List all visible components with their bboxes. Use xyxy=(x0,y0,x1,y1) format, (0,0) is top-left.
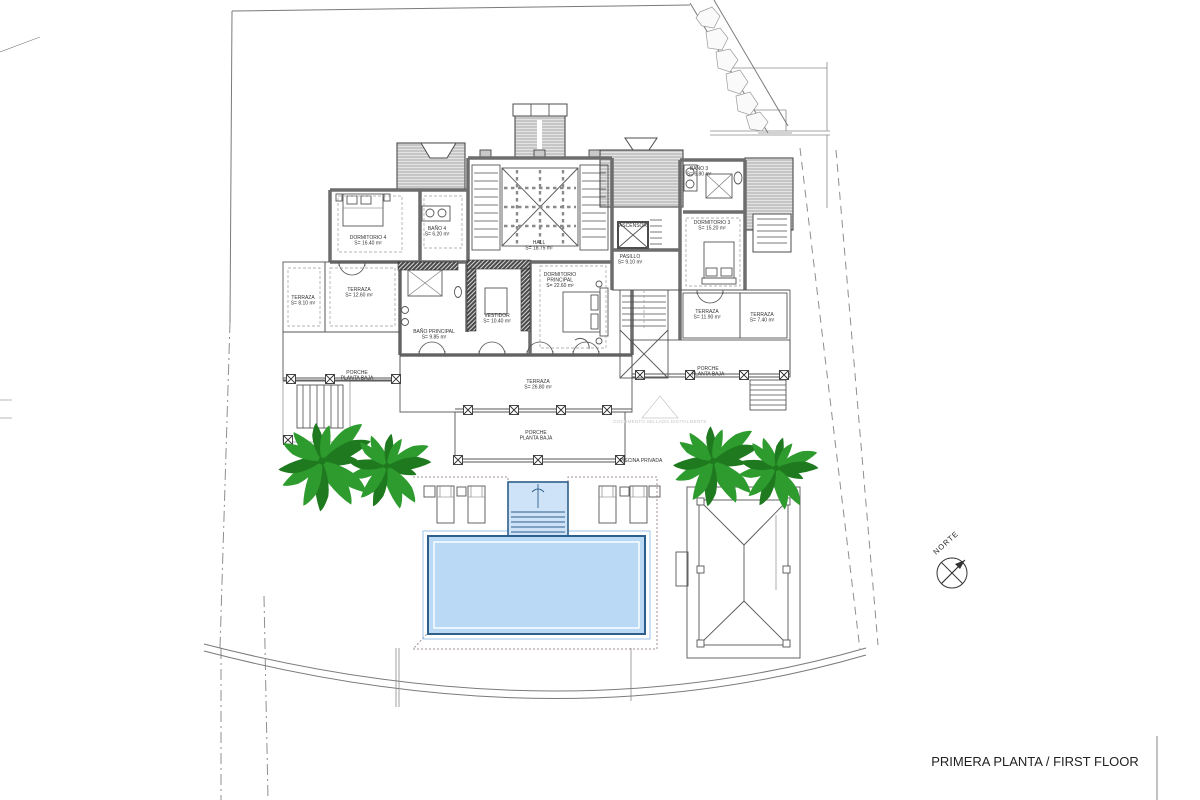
room-label: HALLS= 18.75 m² xyxy=(525,240,553,252)
room-label: DORMITORIO 4S= 16.40 m² xyxy=(350,235,387,247)
room-label: DORMITORIO 3S= 15.20 m² xyxy=(694,220,731,232)
title-block: PRIMERA PLANTA / FIRST FLOOR xyxy=(931,736,1157,800)
compass: NORTE xyxy=(931,529,967,588)
room-label: BAÑO 3S= 6.80 m² xyxy=(687,165,712,178)
pool xyxy=(413,477,657,649)
room-label: TERRAZAS= 8.10 m² xyxy=(291,295,316,307)
room-label: PISCINA PRIVADA xyxy=(620,458,663,464)
pavilion xyxy=(676,487,800,658)
room-label: VESTIDORS= 10.40 m² xyxy=(483,313,511,325)
room-label: PORCHEPLANTA BAJA xyxy=(520,430,553,442)
compass-label: NORTE xyxy=(931,529,960,557)
room-label: PORCHEPLANTA BAJA xyxy=(692,366,725,378)
site-boundary xyxy=(0,5,878,800)
north-arrowhead xyxy=(955,560,965,569)
digital-stamp-watermark: DOCUMENTO SELLADO DIGITALMENTE xyxy=(613,396,706,424)
room-label: PASILLOS= 9.10 m² xyxy=(618,254,643,266)
stone-path xyxy=(690,0,792,133)
room-label: TERRAZAS= 26.80 m² xyxy=(524,379,552,391)
room-label: TERRAZAS= 12.60 m² xyxy=(345,287,373,299)
floor-plan-canvas: DOCUMENTO SELLADO DIGITALMENTE DORMITORI… xyxy=(0,0,1200,800)
room-label: DORMITORIOPRINCIPALS= 22.60 m² xyxy=(544,272,577,289)
room-label: BAÑO PRINCIPALS= 9.85 m² xyxy=(413,328,455,341)
watermark-text: DOCUMENTO SELLADO DIGITALMENTE xyxy=(613,419,706,424)
room-label: BAÑO 4S= 6.20 m² xyxy=(425,225,450,238)
room-label: TERRAZAS= 11.90 m² xyxy=(693,309,720,321)
floor-plan-page: DOCUMENTO SELLADO DIGITALMENTE DORMITORI… xyxy=(0,0,1200,800)
room-label: PORCHEPLANTA BAJA xyxy=(341,370,374,382)
room-label: ASCENSOR xyxy=(619,223,647,229)
plan-title: PRIMERA PLANTA / FIRST FLOOR xyxy=(931,754,1139,769)
room-label: TERRAZAS= 7.40 m² xyxy=(750,312,775,324)
